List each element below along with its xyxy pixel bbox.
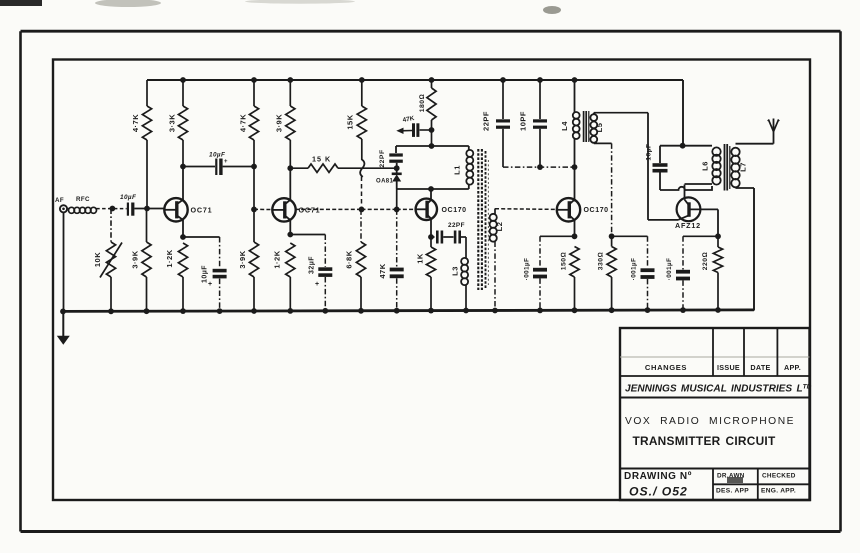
svg-text:3·3K: 3·3K (168, 114, 177, 132)
svg-text:220Ω: 220Ω (702, 252, 709, 271)
svg-text:OC170: OC170 (442, 207, 467, 214)
svg-text:OC71: OC71 (191, 206, 213, 215)
svg-text:OC170: OC170 (584, 207, 609, 214)
svg-text:10K: 10K (93, 252, 102, 267)
svg-text:OS./ O52: OS./ O52 (629, 485, 688, 499)
svg-text:4·7K: 4·7K (131, 114, 140, 132)
svg-text:JENNINGS MUSICAL INDUSTRIES LT: JENNINGS MUSICAL INDUSTRIES LTD (625, 384, 812, 395)
svg-text:3·9K: 3·9K (275, 114, 284, 132)
svg-text:VOX RADIO MICROPHONE: VOX RADIO MICROPHONE (625, 416, 795, 427)
svg-text:10PF: 10PF (519, 111, 528, 131)
svg-text:6·8K: 6·8K (345, 250, 354, 268)
svg-text:·001µF: ·001µF (524, 258, 531, 281)
svg-text:15K: 15K (346, 114, 355, 129)
svg-text:3·9K: 3·9K (131, 250, 140, 268)
svg-text:AF: AF (55, 197, 64, 204)
svg-text:L4: L4 (560, 121, 569, 131)
svg-text:22PF: 22PF (379, 149, 386, 167)
svg-text:10µF: 10µF (646, 143, 653, 160)
svg-text:OA81: OA81 (376, 179, 394, 185)
svg-text:DRAWING Nº: DRAWING Nº (624, 471, 692, 482)
svg-text:L5: L5 (595, 123, 604, 133)
svg-text:32µF: 32µF (309, 256, 316, 274)
svg-text:APP.: APP. (784, 363, 801, 372)
svg-text:15 K: 15 K (312, 155, 331, 164)
svg-text:+: + (208, 281, 213, 288)
svg-text:1·2K: 1·2K (165, 249, 174, 267)
svg-text:L3: L3 (451, 266, 460, 276)
svg-text:L6: L6 (701, 161, 710, 171)
svg-text:·001µF: ·001µF (631, 258, 638, 281)
svg-text:10µF: 10µF (120, 194, 137, 201)
svg-text:1K: 1K (416, 253, 425, 264)
svg-text:CHECKED: CHECKED (762, 473, 796, 480)
svg-text:330Ω: 330Ω (598, 252, 605, 271)
svg-text:22PF: 22PF (482, 111, 491, 131)
svg-text:CHANGES: CHANGES (645, 363, 687, 372)
svg-text:10µF: 10µF (209, 152, 226, 159)
svg-text:·001µF: ·001µF (666, 258, 673, 281)
svg-text:180Ω: 180Ω (419, 94, 426, 113)
svg-text:+: + (315, 281, 320, 288)
svg-text:L2: L2 (495, 222, 504, 232)
svg-text:ENG. APP.: ENG. APP. (761, 488, 796, 495)
svg-text:4·7K: 4·7K (239, 114, 248, 132)
svg-text:ISSUE: ISSUE (717, 363, 740, 372)
svg-text:DATE: DATE (750, 363, 770, 372)
svg-text:TRANSMITTER CIRCUIT: TRANSMITTER CIRCUIT (633, 434, 776, 448)
svg-text:1·2K: 1·2K (273, 250, 282, 268)
svg-text:L7: L7 (739, 162, 748, 172)
svg-text:150Ω: 150Ω (561, 252, 568, 271)
svg-text:22PF: 22PF (448, 222, 465, 229)
svg-text:3·9K: 3·9K (238, 250, 247, 268)
svg-text:DES. APP: DES. APP (716, 488, 749, 495)
svg-text:AFZ12: AFZ12 (675, 221, 701, 230)
svg-text:10µF: 10µF (202, 265, 209, 283)
svg-text:+: + (224, 159, 228, 165)
svg-text:47K: 47K (378, 263, 387, 278)
svg-text:L1: L1 (453, 165, 462, 175)
svg-text:RFC: RFC (76, 196, 90, 203)
